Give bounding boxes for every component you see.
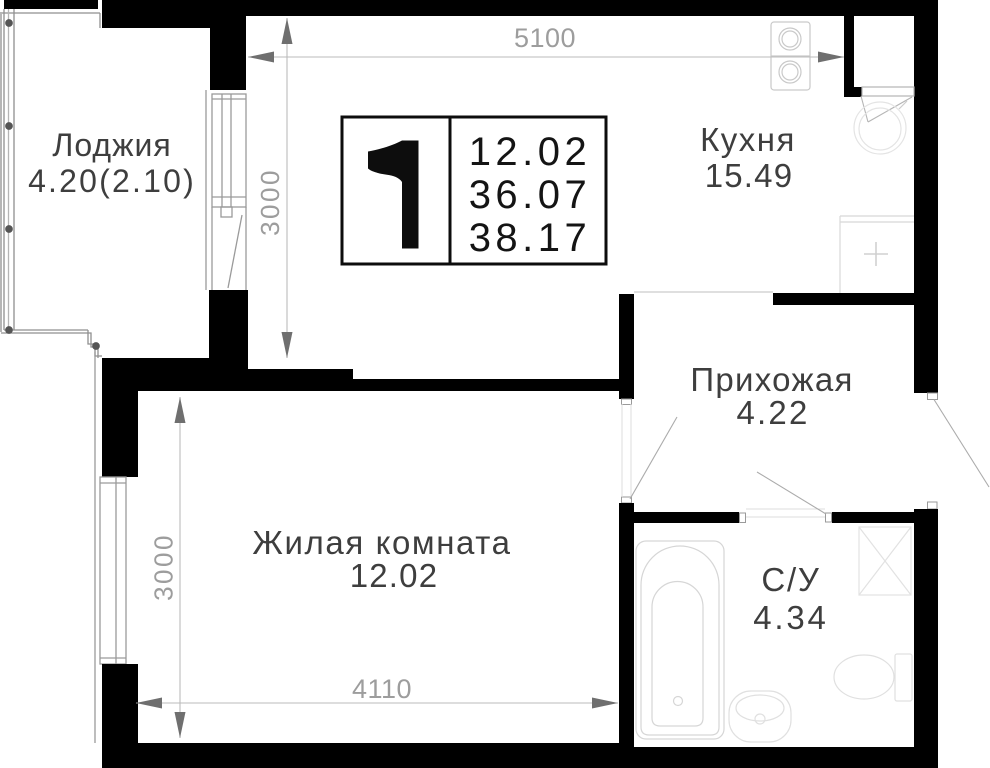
svg-text:4.22: 4.22 <box>736 394 809 431</box>
svg-text:12.02: 12.02 <box>469 130 592 174</box>
svg-text:3000: 3000 <box>149 533 179 601</box>
svg-text:Прихожая: Прихожая <box>690 361 853 398</box>
svg-text:Жилая комната: Жилая комната <box>252 524 511 561</box>
svg-text:36.07: 36.07 <box>469 173 592 217</box>
svg-text:4.20(2.10): 4.20(2.10) <box>28 163 196 199</box>
svg-text:4110: 4110 <box>352 674 412 704</box>
svg-text:38.17: 38.17 <box>469 216 592 260</box>
svg-text:4.34: 4.34 <box>753 599 828 636</box>
svg-text:Лоджия: Лоджия <box>52 127 171 163</box>
svg-text:С/У: С/У <box>761 561 820 598</box>
svg-text:12.02: 12.02 <box>350 557 439 594</box>
svg-text:3000: 3000 <box>255 168 285 236</box>
svg-text:Кухня: Кухня <box>700 121 796 158</box>
svg-text:5100: 5100 <box>514 23 576 53</box>
svg-text:15.49: 15.49 <box>705 157 794 194</box>
